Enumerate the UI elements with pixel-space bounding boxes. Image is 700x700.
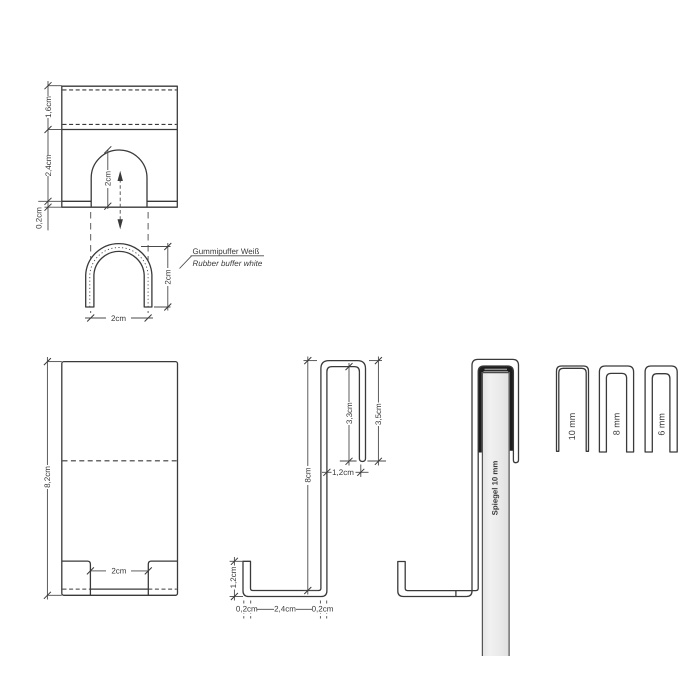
svg-text:Spiegel 10 mm: Spiegel 10 mm bbox=[491, 461, 500, 516]
svg-text:3,5cm: 3,5cm bbox=[374, 403, 383, 425]
svg-text:8 mm: 8 mm bbox=[612, 413, 622, 436]
svg-text:Rubber buffer white: Rubber buffer white bbox=[193, 259, 263, 268]
svg-text:2cm: 2cm bbox=[104, 171, 113, 186]
svg-text:Gummipuffer Weiß: Gummipuffer Weiß bbox=[193, 247, 260, 256]
svg-text:10 mm: 10 mm bbox=[567, 413, 577, 441]
svg-text:8,2cm: 8,2cm bbox=[43, 466, 52, 488]
svg-text:1,6cm: 1,6cm bbox=[44, 96, 53, 118]
svg-text:2cm: 2cm bbox=[164, 269, 173, 284]
svg-text:0,2cm: 0,2cm bbox=[312, 605, 334, 614]
svg-text:2cm: 2cm bbox=[111, 314, 126, 323]
svg-text:1,2cm: 1,2cm bbox=[229, 566, 238, 588]
svg-text:0,2cm: 0,2cm bbox=[236, 605, 258, 614]
svg-text:1,2cm: 1,2cm bbox=[332, 468, 354, 477]
svg-text:2,4cm: 2,4cm bbox=[274, 605, 296, 614]
svg-text:6 mm: 6 mm bbox=[656, 413, 666, 436]
svg-text:2,4cm: 2,4cm bbox=[44, 154, 53, 176]
svg-text:8cm: 8cm bbox=[304, 467, 313, 482]
svg-text:0,2cm: 0,2cm bbox=[35, 207, 44, 229]
svg-text:3,3cm: 3,3cm bbox=[345, 402, 354, 424]
svg-text:2cm: 2cm bbox=[111, 567, 126, 576]
